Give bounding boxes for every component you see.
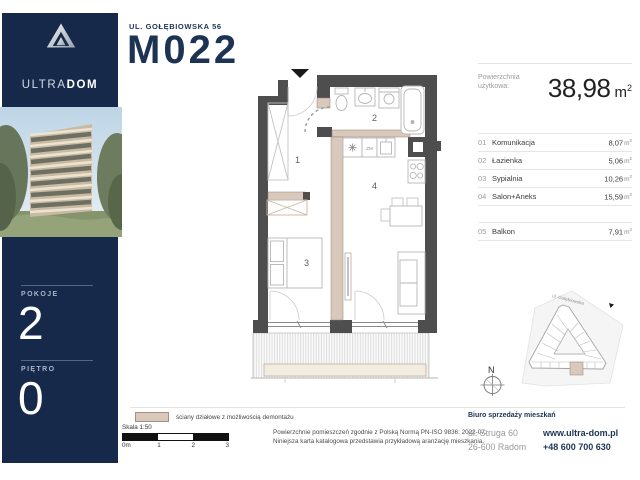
sales-office-contact: Biuro sprzedaży mieszkań ul. Struga 60 2… bbox=[468, 412, 628, 454]
balcony-door-swings bbox=[270, 291, 384, 320]
highlighted-unit bbox=[570, 362, 583, 375]
scale-bar bbox=[122, 433, 229, 441]
north-label: N bbox=[488, 365, 495, 375]
footer-divider bbox=[130, 407, 625, 408]
room-label-hall: 1 bbox=[295, 155, 300, 165]
usable-area-summary: Powierzchnia użytkowa: 38,98m2 bbox=[478, 63, 632, 104]
brand-name-bold: DOM bbox=[67, 79, 99, 91]
wardrobe-icon bbox=[268, 103, 288, 180]
room-row: 04 Salon+Aneks 15,59m2 bbox=[478, 187, 632, 206]
door-jamb bbox=[303, 192, 310, 200]
floor-plan: ZM bbox=[235, 60, 460, 400]
catalog-card: { "branding": {"name_light": "ULTRA", "n… bbox=[0, 0, 640, 480]
plan-legend: ściany działowe z możliwością demontażu bbox=[135, 412, 294, 422]
site-map: ul. Gołębiowska N bbox=[475, 283, 640, 398]
room-list: 01 Komunikacja 8,07m2 02 Łazienka 5,06m2… bbox=[478, 133, 632, 241]
legal-note: Powierzchnie pomieszczeń zgodnie z Polsk… bbox=[273, 428, 487, 447]
office-address: ul. Struga 60 26-600 Radom bbox=[468, 427, 543, 454]
scale-bar-block: Skala 1:50 0m 1 2 3 bbox=[122, 424, 229, 450]
usable-area-label: Powierzchnia użytkowa: bbox=[478, 73, 548, 92]
balcony bbox=[251, 333, 438, 383]
rooms-count-value: 2 bbox=[18, 300, 118, 346]
room-label-living: 4 bbox=[372, 181, 377, 191]
usable-area-value: 38,98m2 bbox=[548, 73, 632, 104]
entrance bbox=[288, 69, 317, 116]
sofa-icon bbox=[398, 252, 425, 314]
room-row-balcony: 05 Balkon 7,91m2 bbox=[478, 222, 632, 241]
street-arrow-icon bbox=[609, 303, 614, 308]
unit-summary-panel: POKOJE 2 PIĘTRO 0 bbox=[2, 237, 118, 463]
brand-logo-block: ULTRADOM bbox=[2, 13, 118, 107]
fridge-symbol bbox=[349, 144, 357, 152]
phone-link[interactable]: +48 600 700 630 bbox=[543, 441, 618, 455]
website-link[interactable]: www.ultra-dom.pl bbox=[543, 427, 618, 441]
bed-icon bbox=[268, 238, 322, 288]
sales-office-label: Biuro sprzedaży mieszkań bbox=[468, 412, 628, 419]
toilet-icon bbox=[336, 96, 347, 111]
tv-unit-icon bbox=[345, 253, 351, 300]
dining-set-icon bbox=[381, 198, 422, 226]
brand-name-light: ULTRA bbox=[22, 79, 67, 91]
room-label-bath: 2 bbox=[372, 113, 377, 123]
divider bbox=[21, 285, 93, 286]
unit-number: M022 bbox=[127, 28, 239, 73]
scale-ticks: 0m 1 2 3 bbox=[122, 442, 229, 450]
legend-text: ściany działowe z możliwością demontażu bbox=[176, 414, 294, 421]
bedroom-wardrobe-icon bbox=[267, 200, 307, 215]
room-label-bed: 3 bbox=[304, 258, 309, 268]
ultradom-logo-icon bbox=[46, 22, 76, 49]
room-row: 02 Łazienka 5,06m2 bbox=[478, 151, 632, 169]
demountable-wall-swatch bbox=[135, 412, 169, 422]
entrance-arrow-icon bbox=[291, 69, 309, 78]
brand-wordmark: ULTRADOM bbox=[2, 79, 118, 91]
floor-value: 0 bbox=[18, 375, 118, 421]
scale-label: Skala 1:50 bbox=[122, 424, 229, 431]
north-compass-icon: N bbox=[481, 365, 505, 396]
bathroom-fixtures bbox=[335, 86, 424, 134]
stove-icon bbox=[408, 160, 425, 183]
shaft bbox=[413, 142, 423, 152]
divider bbox=[21, 360, 93, 361]
toilet-tank bbox=[335, 88, 348, 94]
room-row: 03 Sypialnia 10,26m2 bbox=[478, 169, 632, 187]
room-row: 01 Komunikacja 8,07m2 bbox=[478, 133, 632, 151]
building-photo bbox=[0, 107, 122, 237]
dishwasher-label: ZM bbox=[366, 146, 373, 151]
